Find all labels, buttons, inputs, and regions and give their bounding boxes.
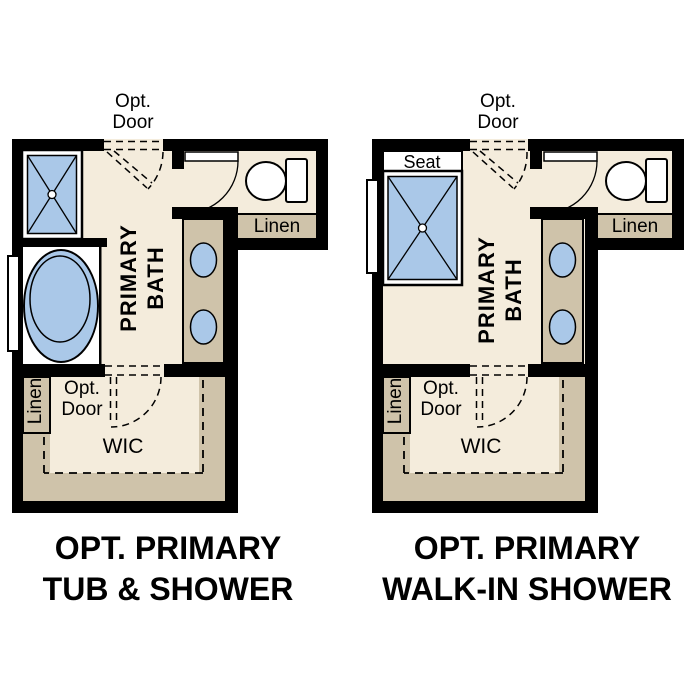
vanity	[183, 219, 224, 363]
room-label-line1: PRIMARY	[473, 210, 500, 370]
opt-door-top-label-line2: Door	[93, 112, 173, 133]
toilet	[606, 159, 667, 202]
toilet	[246, 159, 307, 202]
caption-line1: OPT. PRIMARY	[18, 528, 318, 569]
window	[8, 256, 19, 351]
vanity	[542, 219, 583, 363]
opt-door-top-label-line1: Opt.	[93, 91, 173, 112]
plan-caption-tub-shower: OPT. PRIMARY TUB & SHOWER	[18, 528, 318, 610]
sink	[550, 243, 576, 277]
room-label-line2: BATH	[142, 198, 169, 358]
linen-label-bath: Linen	[237, 216, 317, 238]
floorplan-canvas: Opt. Door PRIMARY BATH Linen Opt. Door L…	[0, 0, 687, 687]
caption-line1: OPT. PRIMARY	[367, 528, 687, 569]
plan-caption-walk-in-shower: OPT. PRIMARY WALK-IN SHOWER	[367, 528, 687, 610]
opt-door-wic-label-line1: Opt.	[401, 378, 481, 399]
wic-label: WIC	[83, 436, 163, 458]
opt-door-top-label-line1: Opt.	[458, 91, 538, 112]
linen-label-wic: Linen	[385, 366, 407, 436]
room-label-line2: BATH	[500, 210, 527, 370]
opt-door-wic-label-line2: Door	[42, 399, 122, 420]
window	[367, 180, 378, 273]
linen-label-bath: Linen	[595, 216, 675, 238]
opt-door-top-label-line2: Door	[458, 112, 538, 133]
shower	[22, 150, 82, 239]
sink	[550, 310, 576, 344]
wic-label: WIC	[441, 436, 521, 458]
room-label-primary-bath: PRIMARY BATH	[115, 198, 169, 358]
seat-label: Seat	[382, 152, 462, 172]
tub-alcove-edge	[99, 247, 102, 364]
opt-door-wic-label-line1: Opt.	[42, 378, 122, 399]
bathtub	[24, 250, 98, 362]
linen-label-wic: Linen	[25, 366, 47, 436]
opt-door-wic-label-line2: Door	[401, 399, 481, 420]
room-label-line1: PRIMARY	[115, 198, 142, 358]
sink	[191, 243, 217, 277]
caption-line2: WALK-IN SHOWER	[367, 569, 687, 610]
room-label-primary-bath: PRIMARY BATH	[473, 210, 527, 370]
sink	[191, 310, 217, 344]
caption-line2: TUB & SHOWER	[18, 569, 318, 610]
